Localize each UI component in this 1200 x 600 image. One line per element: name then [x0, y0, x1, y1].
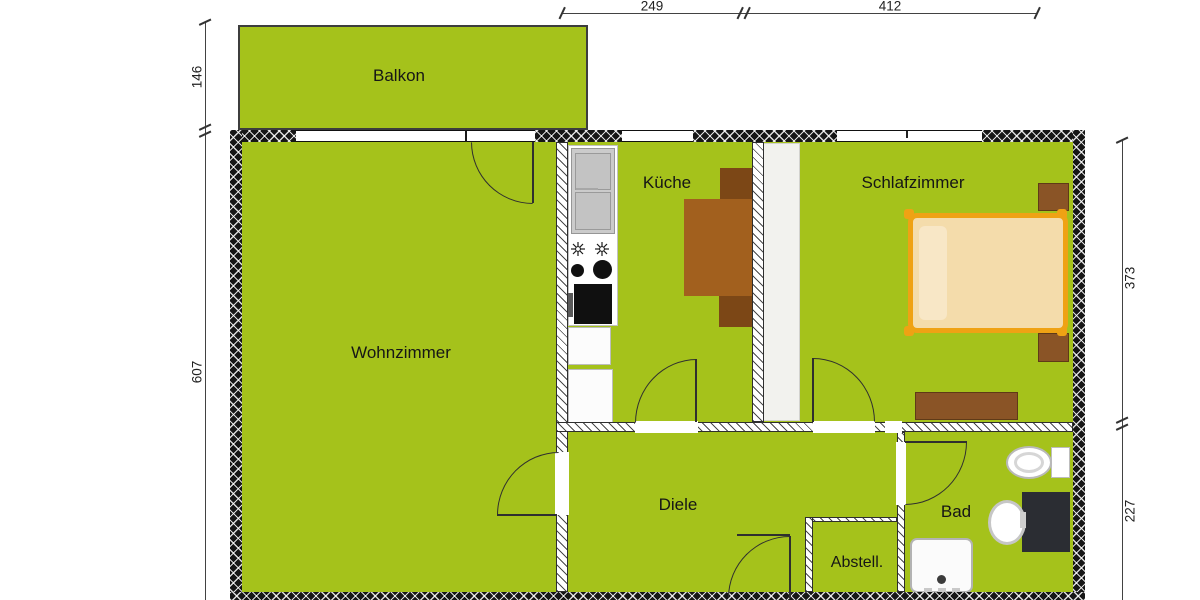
- shower-drain: [937, 575, 946, 584]
- sink-tap: [1020, 512, 1026, 528]
- wall-abstell-left: [805, 517, 813, 592]
- dimension-value-left-1: 607: [190, 361, 205, 384]
- dresser-symbol: [915, 392, 1018, 420]
- room-label-balkon: Balkon: [373, 66, 425, 86]
- dimension-line-right: [1122, 140, 1123, 600]
- wall-abstell-top: [805, 517, 897, 522]
- wall-outer-bottom: [230, 592, 1085, 600]
- kitchen-cabinet-symbol: [568, 369, 613, 423]
- shower-symbol: [910, 538, 973, 593]
- room-label-diele: Diele: [659, 495, 698, 515]
- window-mullion: [906, 131, 908, 138]
- room-label-kueche: Küche: [643, 173, 691, 193]
- kitchen-cabinet-symbol: [568, 327, 611, 365]
- wall-kueche-schlafzimmer: [752, 142, 764, 422]
- room-label-abstell: Abstell.: [831, 554, 883, 572]
- wall-wohnzimmer-right: [556, 142, 568, 592]
- dimension-value-top-0: 249: [641, 0, 664, 14]
- window-divider: [465, 130, 467, 142]
- chair-symbol: [720, 168, 752, 202]
- apartment-floor: [242, 142, 1073, 592]
- wall-outer-right: [1073, 130, 1085, 600]
- bed-pillow: [919, 226, 947, 320]
- room-label-schlafzimmer: Schlafzimmer: [862, 173, 965, 193]
- dimension-value-right-1: 227: [1123, 500, 1138, 523]
- room-label-bad: Bad: [941, 502, 971, 522]
- window-schlafzimmer: [837, 130, 982, 142]
- fridge-door-lower: [575, 192, 611, 230]
- room-label-wohnzimmer: Wohnzimmer: [351, 343, 451, 363]
- toilet-bowl-inner: [1014, 452, 1044, 473]
- door-opening-schlafzimmer: [813, 421, 875, 433]
- window-wohnzimmer: [296, 130, 466, 142]
- fridge-door-upper: [575, 153, 611, 190]
- burner-icon: [595, 242, 609, 256]
- wardrobe-symbol: [760, 143, 800, 421]
- dimension-value-left-0: 146: [190, 66, 205, 89]
- dimension-line-top: [562, 13, 1037, 14]
- dimension-line-left: [205, 22, 206, 600]
- nightstand-symbol brown: [1038, 183, 1069, 211]
- chair-symbol: [719, 294, 752, 327]
- dimension-value-right-0: 373: [1123, 267, 1138, 290]
- nightstand-symbol: [1038, 333, 1069, 362]
- toilet-tank: [1051, 447, 1070, 478]
- wall-outer-left: [230, 130, 242, 600]
- hotplate-large: [593, 260, 612, 279]
- hotplate-small: [571, 264, 584, 277]
- fridge-handle: [576, 188, 598, 190]
- balcony-door-opening: [466, 130, 535, 142]
- stove-symbol: [574, 284, 612, 324]
- burner-icon: [571, 242, 585, 256]
- vanity-symbol: [1022, 492, 1070, 552]
- window-kueche: [622, 130, 693, 142]
- floor-plan: Balkon Wohnzimmer Küche Schlafzimmer Die…: [0, 0, 1200, 600]
- wall-notch: [885, 421, 902, 433]
- dimension-value-top-1: 412: [879, 0, 902, 14]
- table-symbol: [684, 199, 752, 296]
